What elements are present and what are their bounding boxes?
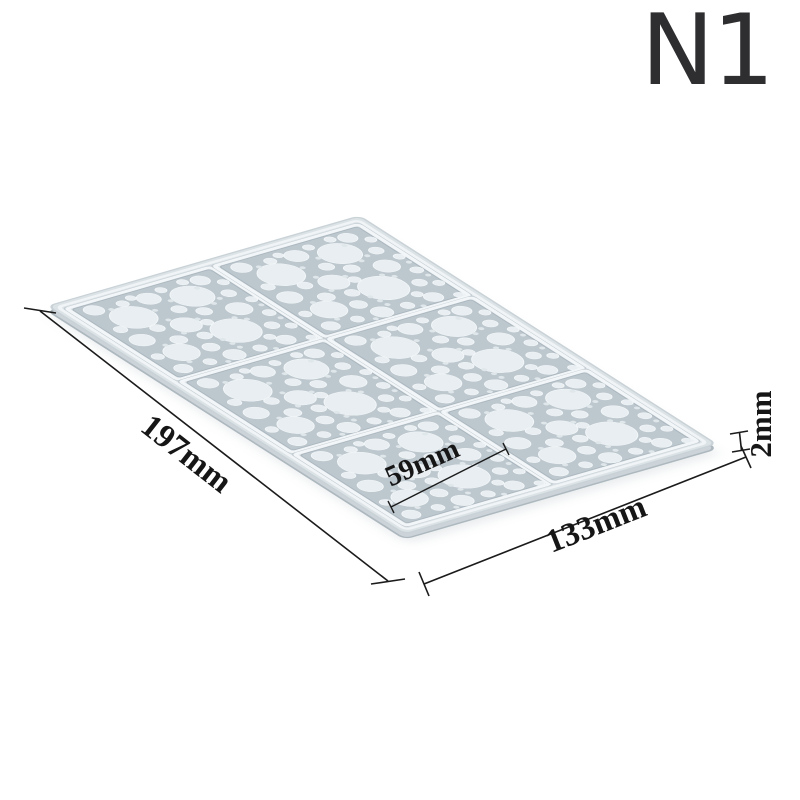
product-image: N1 (0, 0, 800, 800)
dimension-tick-width-left (419, 572, 429, 596)
dimension-label-thickness: 2mm (743, 390, 778, 457)
mold-scene: 197mm 133mm 59mm 2mm (0, 0, 800, 800)
dimension-tick-length-bottom (371, 579, 405, 584)
